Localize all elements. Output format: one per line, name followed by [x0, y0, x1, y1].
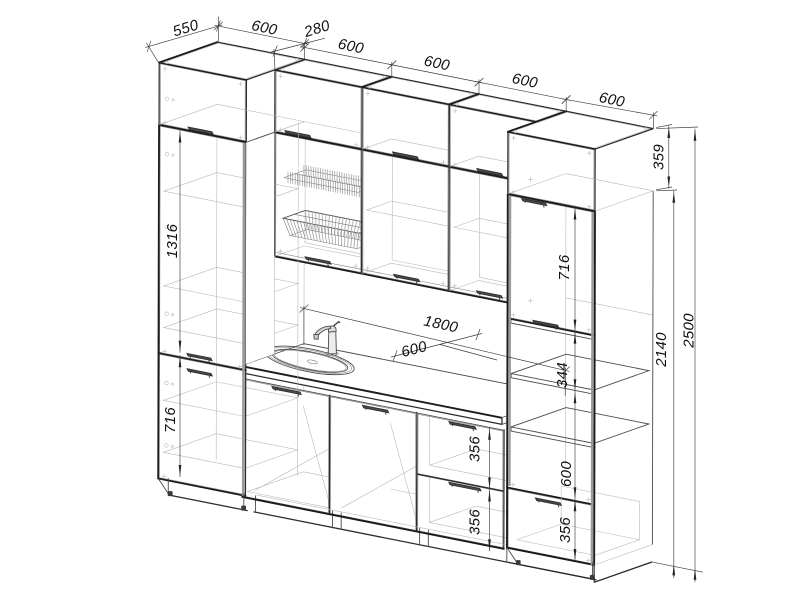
svg-text:359: 359 — [651, 144, 668, 170]
svg-text:356: 356 — [467, 436, 484, 462]
svg-text:600: 600 — [558, 461, 575, 487]
svg-text:716: 716 — [162, 407, 179, 433]
svg-text:716: 716 — [556, 254, 573, 280]
svg-text:2140: 2140 — [653, 332, 670, 368]
svg-text:344: 344 — [554, 362, 571, 388]
svg-text:1316: 1316 — [164, 223, 181, 258]
svg-text:356: 356 — [557, 517, 574, 543]
svg-text:2500: 2500 — [681, 313, 698, 349]
svg-text:356: 356 — [467, 509, 484, 535]
